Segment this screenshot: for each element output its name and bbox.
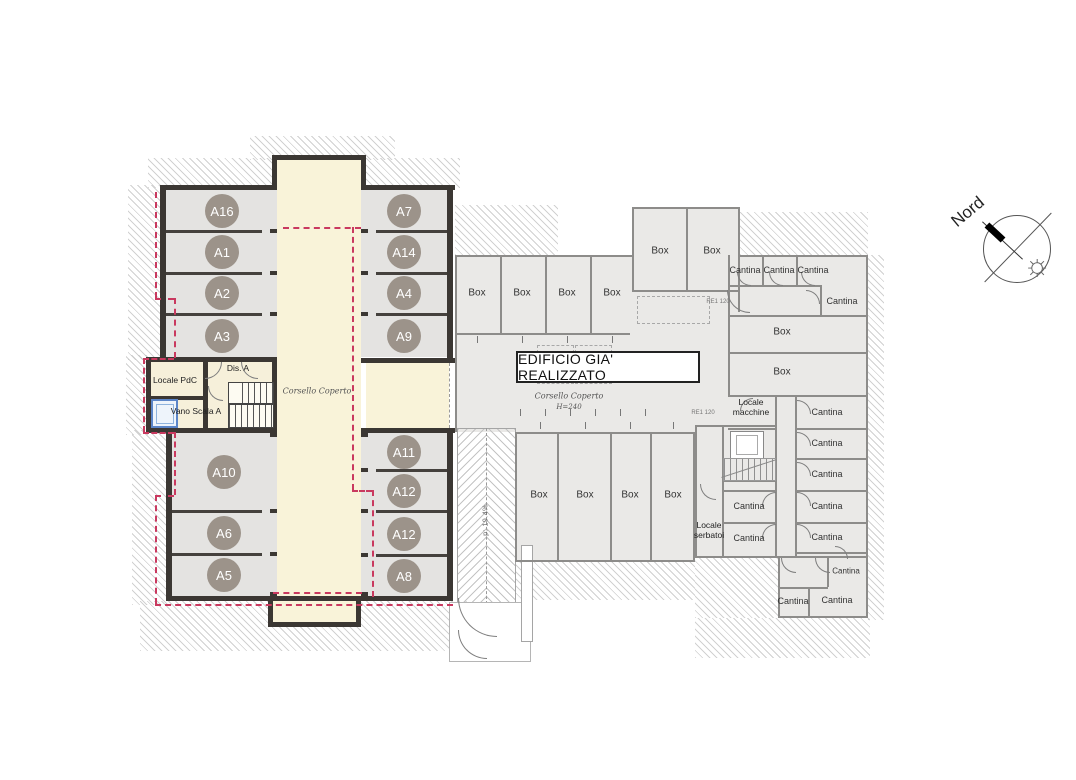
cantina-label: Cantina (811, 501, 842, 511)
ramp-right-half (486, 428, 516, 606)
dimension-tick (645, 409, 646, 416)
box-label: Box (513, 288, 530, 299)
dimension-tick (520, 409, 521, 416)
wall-stub (270, 509, 277, 513)
parking-stall-badge: A10 (207, 455, 241, 489)
wall (361, 428, 455, 433)
wall (632, 290, 740, 292)
stall-divider (166, 313, 262, 316)
parking-stall-badge: A14 (387, 235, 421, 269)
dimension-tick (585, 422, 586, 429)
wall (455, 255, 457, 432)
boundary-dashed (155, 298, 174, 300)
parking-stall-badge: A5 (207, 558, 241, 592)
room-label-locale-pdc: Locale PdC (153, 375, 197, 385)
box-label: Box (664, 490, 681, 501)
stall-divider (376, 272, 447, 275)
dimension-tick (545, 409, 546, 416)
wall (272, 155, 277, 190)
wall-stub (361, 468, 368, 472)
wall (610, 434, 612, 560)
wall (160, 185, 277, 190)
dimension-tick (673, 422, 674, 429)
wall (650, 434, 652, 560)
boundary-dashed (174, 432, 176, 495)
wall (728, 255, 730, 395)
wall (457, 333, 630, 335)
boundary-dashed (155, 495, 157, 604)
ground-hatch (740, 212, 868, 255)
cantina-label: Cantina (763, 265, 794, 275)
boundary-dashed (174, 298, 176, 358)
dimension-tick (477, 336, 478, 343)
ground-hatch (695, 558, 778, 618)
wall-stub (361, 553, 368, 557)
cantina-label: Cantina (832, 567, 860, 576)
wall (447, 433, 453, 601)
boundary-dashed (372, 490, 374, 597)
box-label: Box (603, 288, 620, 299)
cantina-label: Cantina (811, 469, 842, 479)
wall (795, 428, 868, 430)
boundary-dashed (155, 192, 157, 298)
stall-divider (376, 510, 447, 513)
parking-stall-badge: A9 (387, 319, 421, 353)
wall (515, 560, 695, 562)
wall-stub (270, 552, 277, 556)
wall (590, 257, 592, 333)
wall (693, 432, 695, 562)
wall (728, 352, 868, 354)
dimension-tick (630, 422, 631, 429)
cantina-label: Cantina (733, 533, 764, 543)
wall-stub (361, 312, 368, 316)
room-label-locale-macchine: Locale macchine (730, 398, 772, 418)
stair-landing (228, 403, 274, 405)
wall (515, 432, 517, 562)
wall (166, 596, 453, 601)
wall (728, 428, 775, 430)
dimension-tick (522, 336, 523, 343)
north-label: Nord (947, 192, 988, 231)
corridor-label: Corsello Coperto (535, 392, 604, 401)
wall (361, 358, 455, 363)
parking-stall-badge: A7 (387, 194, 421, 228)
stair-treads (242, 383, 273, 403)
wall (272, 155, 366, 160)
parking-stall-badge: A16 (205, 194, 239, 228)
stall-divider (376, 554, 447, 557)
ground-hatch (695, 618, 870, 658)
wall-stub (270, 229, 277, 233)
stair-treads (229, 405, 273, 427)
wall (557, 434, 559, 560)
dimension-tick (612, 336, 613, 343)
wall-stub (270, 312, 277, 316)
driveway-passage (366, 363, 449, 428)
room-label-vano-scala: Vano Scala A (171, 406, 221, 416)
ground-hatch (515, 562, 695, 600)
boundary-dashed (143, 432, 174, 434)
parking-stall-badge: A8 (387, 559, 421, 593)
wall (778, 587, 828, 589)
box-label: Box (773, 367, 790, 378)
cantina-label: Cantina (797, 265, 828, 275)
existing-building-banner: EDIFICIO GIA' REALIZZATO (516, 351, 700, 383)
wall (795, 522, 868, 524)
parking-stall-badge: A6 (207, 516, 241, 550)
boundary-dashed (143, 358, 174, 360)
cantina-label: Cantina (811, 438, 842, 448)
box-label: Box (703, 246, 720, 257)
wall (722, 522, 775, 524)
stall-divider (376, 313, 447, 316)
boundary-dashed (155, 495, 174, 497)
parking-stall-badge: A3 (205, 319, 239, 353)
boundary-dashed (273, 592, 362, 594)
parking-stall-badge: A12 (387, 517, 421, 551)
dimension-tick (620, 409, 621, 416)
wall-stub (361, 229, 368, 233)
box-label: Box (621, 490, 638, 501)
box-label: Box (576, 490, 593, 501)
room-label-dis-a: Dis. A (227, 363, 249, 373)
sun-icon: ☼ (1023, 249, 1051, 283)
wall (728, 315, 868, 317)
floor-plan: p: 19.4% (0, 0, 1076, 780)
wall (515, 432, 695, 434)
wall-stub (361, 592, 368, 596)
ground-hatch (455, 205, 558, 255)
wall-stub (361, 271, 368, 275)
wall (778, 616, 868, 618)
parking-stall-badge: A1 (205, 235, 239, 269)
wall (795, 490, 868, 492)
cantina-label: Cantina (826, 296, 857, 306)
corridor-height-label: H=240 (556, 403, 581, 411)
cantina-label: Cantina (729, 265, 760, 275)
elevator-cab (736, 435, 758, 455)
cantina-label: Cantina (811, 532, 842, 542)
wall (361, 155, 366, 190)
cantina-label: Cantina (777, 596, 808, 606)
box-label: Box (530, 490, 547, 501)
wall (632, 207, 634, 292)
wall-stub (361, 509, 368, 513)
stall-divider (376, 469, 447, 472)
room-label-locale-serbatoi: Locale serbatoi (689, 521, 729, 541)
boundary-dashed (283, 227, 361, 229)
dimension-tick (595, 409, 596, 416)
stall-divider (166, 230, 262, 233)
parking-stall-badge: A4 (387, 276, 421, 310)
wall (447, 185, 453, 363)
stall-divider (172, 510, 262, 513)
wall (500, 257, 502, 333)
cantina-label: Cantina (811, 407, 842, 417)
parking-stall-badge: A2 (205, 276, 239, 310)
corridor-label: Corsello Coperto (283, 387, 352, 396)
dimension-tick (567, 336, 568, 343)
wall (268, 622, 361, 627)
parking-stall-badge: A11 (387, 435, 421, 469)
boundary-dashed (155, 604, 453, 606)
cantina-label: Cantina (821, 595, 852, 605)
box-label: Box (773, 327, 790, 338)
wall (722, 490, 775, 492)
existing-building-area (455, 255, 632, 432)
ground-hatch (132, 430, 168, 605)
boundary-dashed (143, 358, 145, 432)
wall-stub (270, 433, 277, 437)
wall-stub (270, 271, 277, 275)
wall (695, 425, 775, 427)
wall (820, 285, 822, 315)
wall (728, 285, 822, 287)
ground-hatch (868, 255, 884, 620)
stall-divider (166, 272, 262, 275)
stall-divider (376, 230, 447, 233)
wall (722, 480, 724, 558)
box-label: Box (468, 288, 485, 299)
wall (866, 255, 868, 618)
dashed-line (449, 363, 450, 428)
dimension-tick (540, 422, 541, 429)
wall (361, 185, 455, 190)
stall-divider (172, 553, 262, 556)
door-note: RE1 120 (691, 410, 714, 416)
box-label: Box (651, 246, 668, 257)
dashed-outline (637, 296, 710, 324)
wall-stub (361, 433, 368, 437)
door-note: RE1 120 (706, 299, 729, 305)
wall (795, 458, 868, 460)
wall (166, 433, 172, 601)
wall (795, 552, 868, 554)
boundary-dashed (352, 490, 372, 492)
parking-stall-badge: A12 (387, 474, 421, 508)
cantina-label: Cantina (733, 501, 764, 511)
box-label: Box (558, 288, 575, 299)
ramp-slope-label: p: 19.4% (483, 504, 490, 536)
wall (455, 255, 632, 257)
wall (686, 209, 688, 290)
boundary-dashed (352, 227, 354, 490)
wall (545, 257, 547, 333)
wall (740, 255, 868, 257)
